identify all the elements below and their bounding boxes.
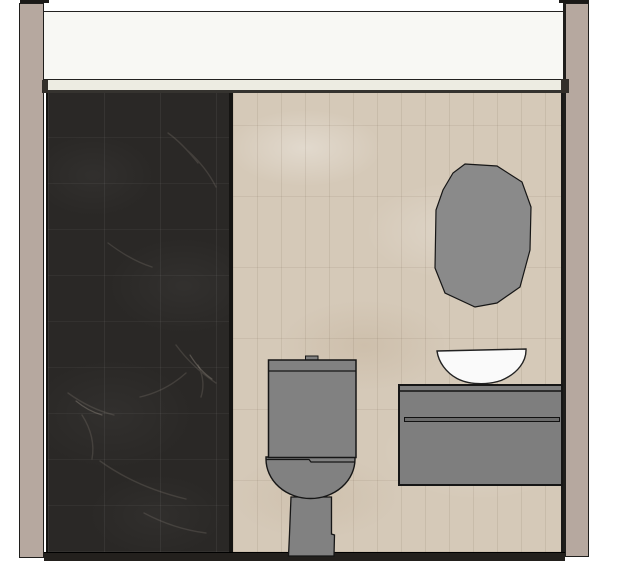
cove-cap-left	[42, 80, 48, 93]
elevation-view	[0, 0, 626, 581]
sink-bowl[interactable]	[437, 349, 526, 384]
marble-veins	[48, 93, 231, 552]
vanity-counter-edge	[400, 390, 561, 392]
mirror[interactable]	[430, 158, 540, 313]
ceiling-bulkhead	[44, 11, 563, 80]
toilet-bowl[interactable]	[266, 457, 355, 499]
vanity-cabinet[interactable]	[398, 384, 563, 486]
cove-band	[44, 80, 563, 93]
dark-marble-wall[interactable]	[46, 93, 229, 552]
left-wall-column	[19, 3, 44, 558]
vessel-sink[interactable]	[430, 344, 535, 389]
toilet-tank[interactable]	[269, 360, 357, 458]
toilet-pedestal[interactable]	[289, 497, 335, 556]
toilet[interactable]	[250, 340, 376, 566]
vanity-drawer-pull[interactable]	[404, 417, 560, 422]
mirror-face[interactable]	[435, 164, 531, 307]
cove-cap-right	[561, 79, 569, 93]
